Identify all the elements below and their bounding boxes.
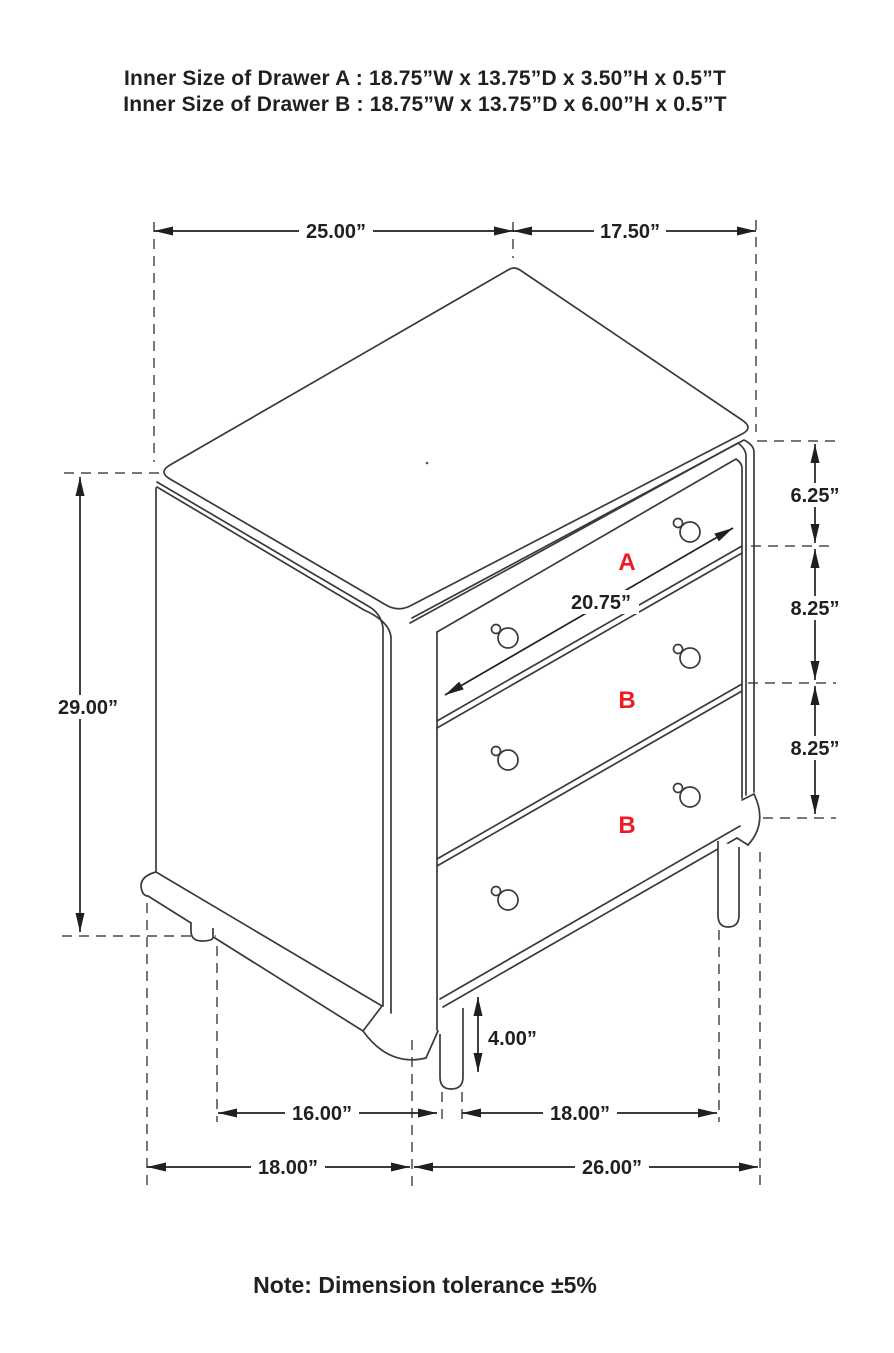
drawer-b2-label: B [618,812,635,839]
dim-base-depth: 18.00” [147,1155,410,1179]
right-leg [718,841,739,927]
dim-leg-height-label: 4.00” [488,1028,537,1050]
drawer-knob [492,625,519,649]
dim-foot-front-label: 18.00” [550,1103,610,1125]
dim-top-width: 25.00” [154,219,513,243]
dim-overall-height-label: 29.00” [58,697,118,719]
drawer-knob [492,747,519,771]
dim-drawer-b2-height: 8.25” [786,686,845,814]
dim-foot-spacing-front: 18.00” [462,1101,717,1125]
dim-drawer-b1-label: 8.25” [791,598,840,620]
surface-dot [426,462,429,465]
dim-drawer-a-label: 6.25” [791,485,840,507]
cabinet-top-surface [164,268,748,609]
base-front-corner [363,1006,438,1060]
dimension-diagram: Inner Size of Drawer A : 18.75”W x 13.75… [0,0,894,1353]
front-leg [440,1008,463,1089]
dim-base-width: 26.00” [414,1155,758,1179]
dim-base-depth-label: 18.00” [258,1157,318,1179]
cabinet-line-art: A B B 25.00” 17.50” 29.00” [0,0,894,1353]
dim-foot-side-label: 16.00” [292,1103,352,1125]
dim-drawer-a-height: 6.25” [786,444,845,543]
legs [191,841,739,1089]
drawer-b1-label: B [618,687,635,714]
back-left-leg [191,922,213,941]
cabinet-drawing: A B B [141,268,760,1089]
dim-diagonal-label: 20.75” [571,592,631,614]
drawer-knob [674,784,701,808]
dim-foot-spacing-side: 16.00” [218,1101,437,1125]
dim-top-depth: 17.50” [513,219,756,243]
dim-overall-height: 29.00” [52,477,124,932]
dim-drawer-b1-height: 8.25” [786,549,845,680]
dim-base-width-label: 26.00” [582,1157,642,1179]
dim-leg-height: 4.00” [478,997,537,1072]
tolerance-note: Note: Dimension tolerance ±5% [0,1272,850,1299]
drawer-knob [674,645,701,669]
dim-top-depth-label: 17.50” [600,221,660,243]
drawer-knob [492,887,519,911]
base-right-rail [440,794,760,1007]
drawer-knob [674,519,701,543]
dim-top-width-label: 25.00” [306,221,366,243]
dim-drawer-b2-label: 8.25” [791,738,840,760]
drawer-a-label: A [618,549,635,576]
drawer-knobs [492,519,701,911]
